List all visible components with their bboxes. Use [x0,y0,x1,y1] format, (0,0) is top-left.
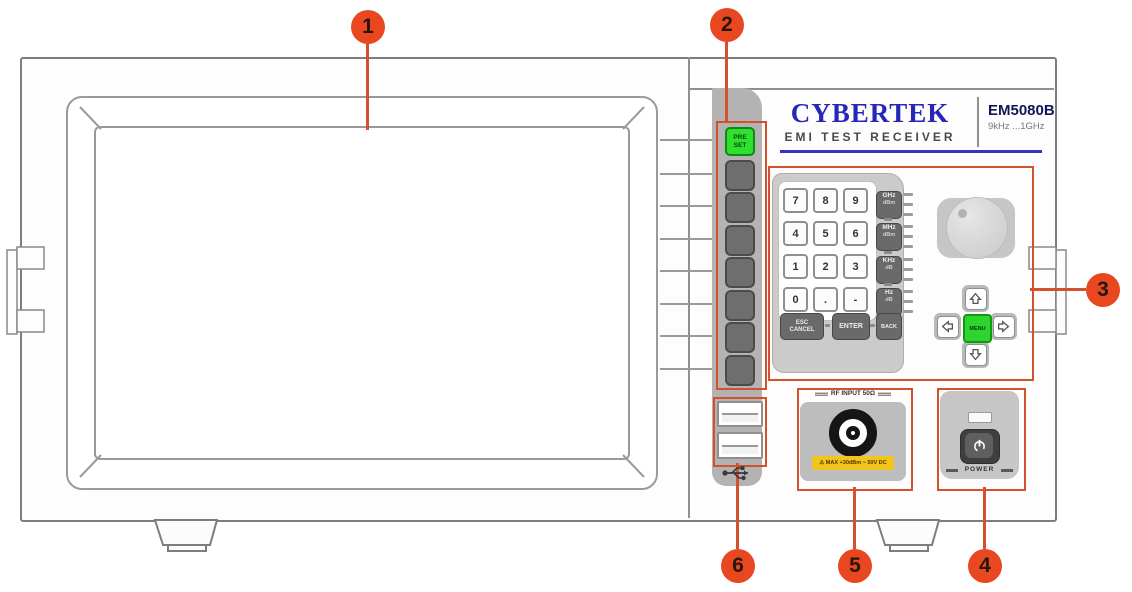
callout-box-3 [768,166,1034,381]
brand-logo: CYBERTEK [770,98,970,129]
callout-box-4 [937,388,1026,491]
brand-tagline: EMI TEST RECEIVER [770,130,970,144]
model-number: EM5080B [988,102,1052,119]
brand-underline [780,150,1042,153]
callout-1: 1 [351,10,385,44]
callout-6: 6 [721,549,755,583]
callout-5: 5 [838,549,872,583]
emi-receiver-front-panel-diagram: PRE SET CYBERTEK EMI TEST RECEIVER EM508… [0,0,1132,592]
callout-3: 3 [1086,273,1120,307]
screen [94,126,630,460]
leader-line-3 [1030,288,1086,291]
usb-icon [721,464,753,481]
left-foot [155,520,217,551]
brand-divider [977,97,979,147]
callout-4: 4 [968,549,1002,583]
callout-box-6 [713,397,767,467]
right-foot [877,520,939,551]
leader-line-4 [983,487,986,549]
leader-line-1 [366,44,369,130]
callout-box-2 [716,121,767,390]
leader-line-2 [725,42,728,121]
leader-line-5 [853,487,856,549]
callout-box-5 [797,388,913,491]
panel-divider-vertical [688,57,690,518]
callout-2: 2 [710,8,744,42]
frequency-range: 9kHz ...1GHz [988,121,1052,132]
